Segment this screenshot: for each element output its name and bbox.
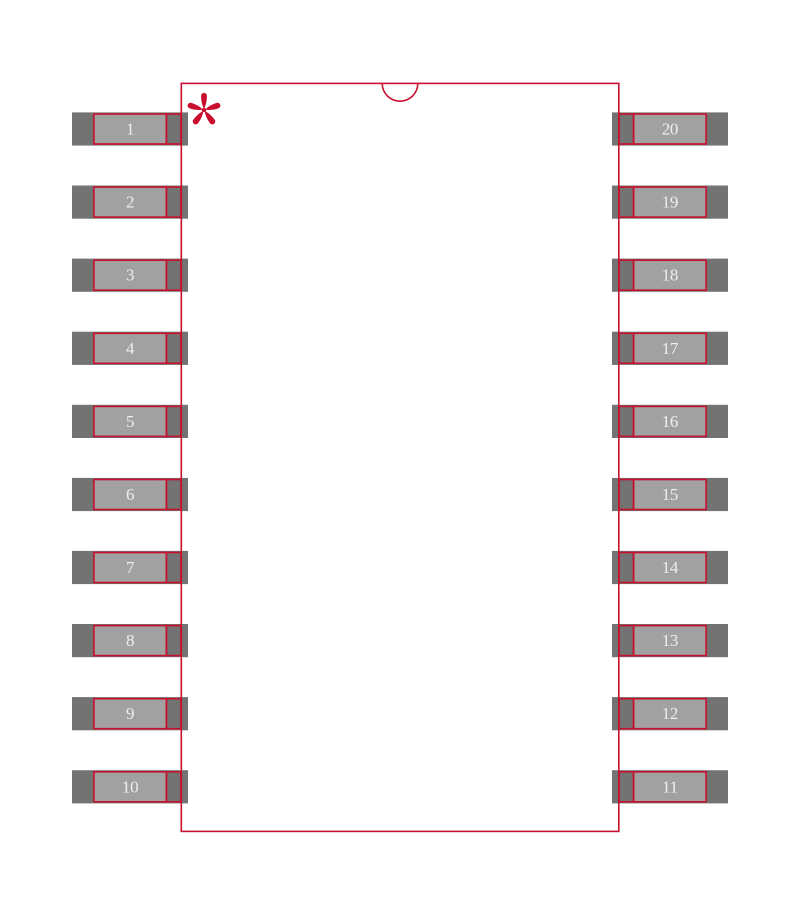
svg-text:19: 19 [662, 193, 678, 212]
svg-text:1: 1 [126, 120, 134, 139]
svg-text:17: 17 [662, 339, 679, 358]
svg-text:4: 4 [126, 339, 135, 358]
svg-text:11: 11 [662, 777, 678, 796]
svg-text:9: 9 [126, 704, 134, 723]
svg-text:12: 12 [662, 704, 678, 723]
svg-text:10: 10 [122, 777, 138, 796]
svg-text:7: 7 [126, 558, 135, 577]
svg-text:15: 15 [662, 485, 678, 504]
svg-text:5: 5 [126, 412, 134, 431]
svg-text:8: 8 [126, 631, 134, 650]
svg-text:2: 2 [126, 193, 134, 212]
svg-text:18: 18 [662, 266, 678, 285]
svg-text:16: 16 [662, 412, 678, 431]
svg-text:13: 13 [662, 631, 678, 650]
svg-text:3: 3 [126, 266, 134, 285]
svg-text:20: 20 [662, 120, 678, 139]
svg-text:14: 14 [662, 558, 679, 577]
svg-text:6: 6 [126, 485, 134, 504]
